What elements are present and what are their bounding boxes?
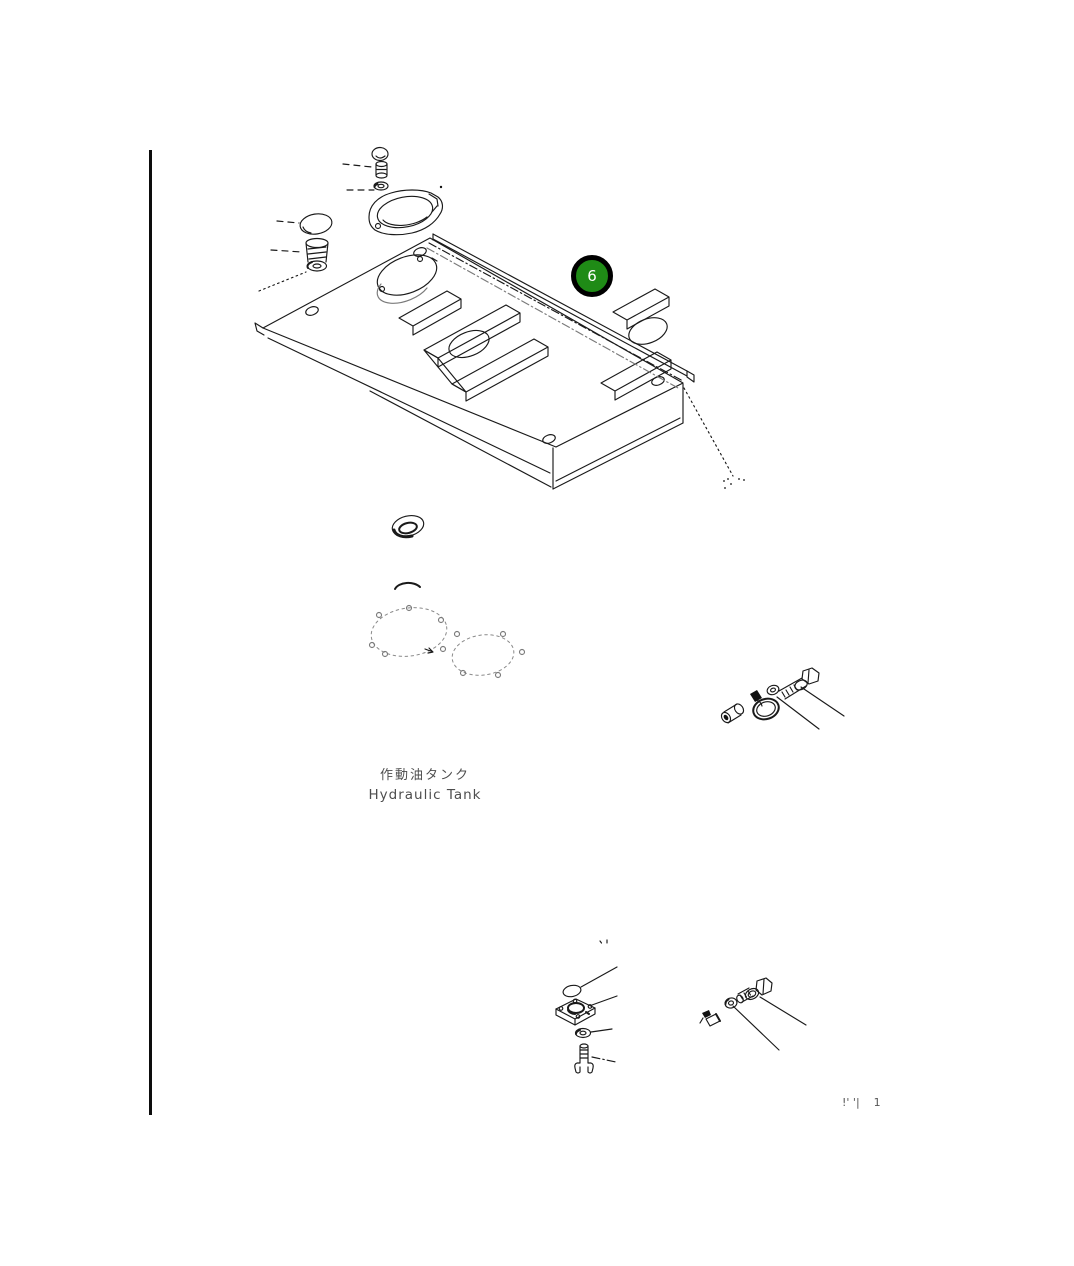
- leader-line: [271, 250, 302, 252]
- leader-line: [733, 997, 806, 1050]
- corner-hole: [542, 433, 557, 445]
- hex-bolt-right-icon: [779, 678, 806, 699]
- center-opening: [445, 325, 493, 362]
- leader-line: [592, 1057, 616, 1062]
- corner-note-marks: !' '|: [842, 1096, 860, 1109]
- breather-cap-part: [390, 512, 426, 589]
- leader-line: [343, 164, 372, 167]
- diagram-caption: 作動油タンク Hydraulic Tank: [330, 764, 520, 803]
- leader-line: [259, 272, 306, 291]
- corner-note: !' '|1: [828, 1083, 881, 1122]
- leader-line: [777, 687, 844, 729]
- threaded-plug-icon: [306, 239, 328, 248]
- tank-cover-panel-part: [255, 234, 733, 489]
- flat-washer-top-icon: [374, 182, 388, 190]
- raised-pad: [399, 291, 461, 335]
- parts-diagram-canvas: [0, 0, 1074, 1266]
- oval-cover-plate-part: [369, 186, 442, 235]
- leader-line: [581, 967, 617, 987]
- part-callout-label: 6: [587, 267, 597, 285]
- leader-line: [591, 1029, 612, 1032]
- clamp-hardware-group: [720, 668, 844, 729]
- clip-hardware-group: [700, 978, 806, 1050]
- raised-pad: [601, 352, 671, 400]
- parts-diagram-page: 6 作動油タンク Hydraulic Tank !' '|1: [0, 0, 1074, 1266]
- caption-japanese: 作動油タンク: [330, 764, 520, 783]
- corner-note-number: 1: [874, 1096, 881, 1109]
- flat-washer-right-icon: [766, 684, 780, 697]
- part-callout-6[interactable]: 6: [571, 255, 613, 297]
- leader-line: [684, 388, 733, 476]
- o-ring-left-icon: [299, 212, 334, 237]
- cover-gaskets-part: [368, 603, 524, 679]
- caption-english: Hydraulic Tank: [330, 787, 520, 803]
- leader-line: [277, 221, 299, 223]
- drain-group-bottom: [556, 940, 617, 1073]
- flange-plate-icon: [556, 999, 595, 1019]
- edge-rail-strip: [433, 234, 687, 376]
- leader-line: [592, 996, 617, 1005]
- corner-hole: [305, 305, 320, 317]
- filler-opening: [372, 247, 443, 303]
- left-oring-plug-group: [259, 212, 333, 291]
- flat-washer-bottom-icon: [576, 1029, 591, 1038]
- stray-marks: [723, 478, 745, 489]
- raised-pad: [613, 289, 669, 329]
- o-ring-bottom-icon: [562, 984, 582, 999]
- raised-pad: [424, 350, 466, 392]
- top-fastener-stack: [343, 148, 388, 191]
